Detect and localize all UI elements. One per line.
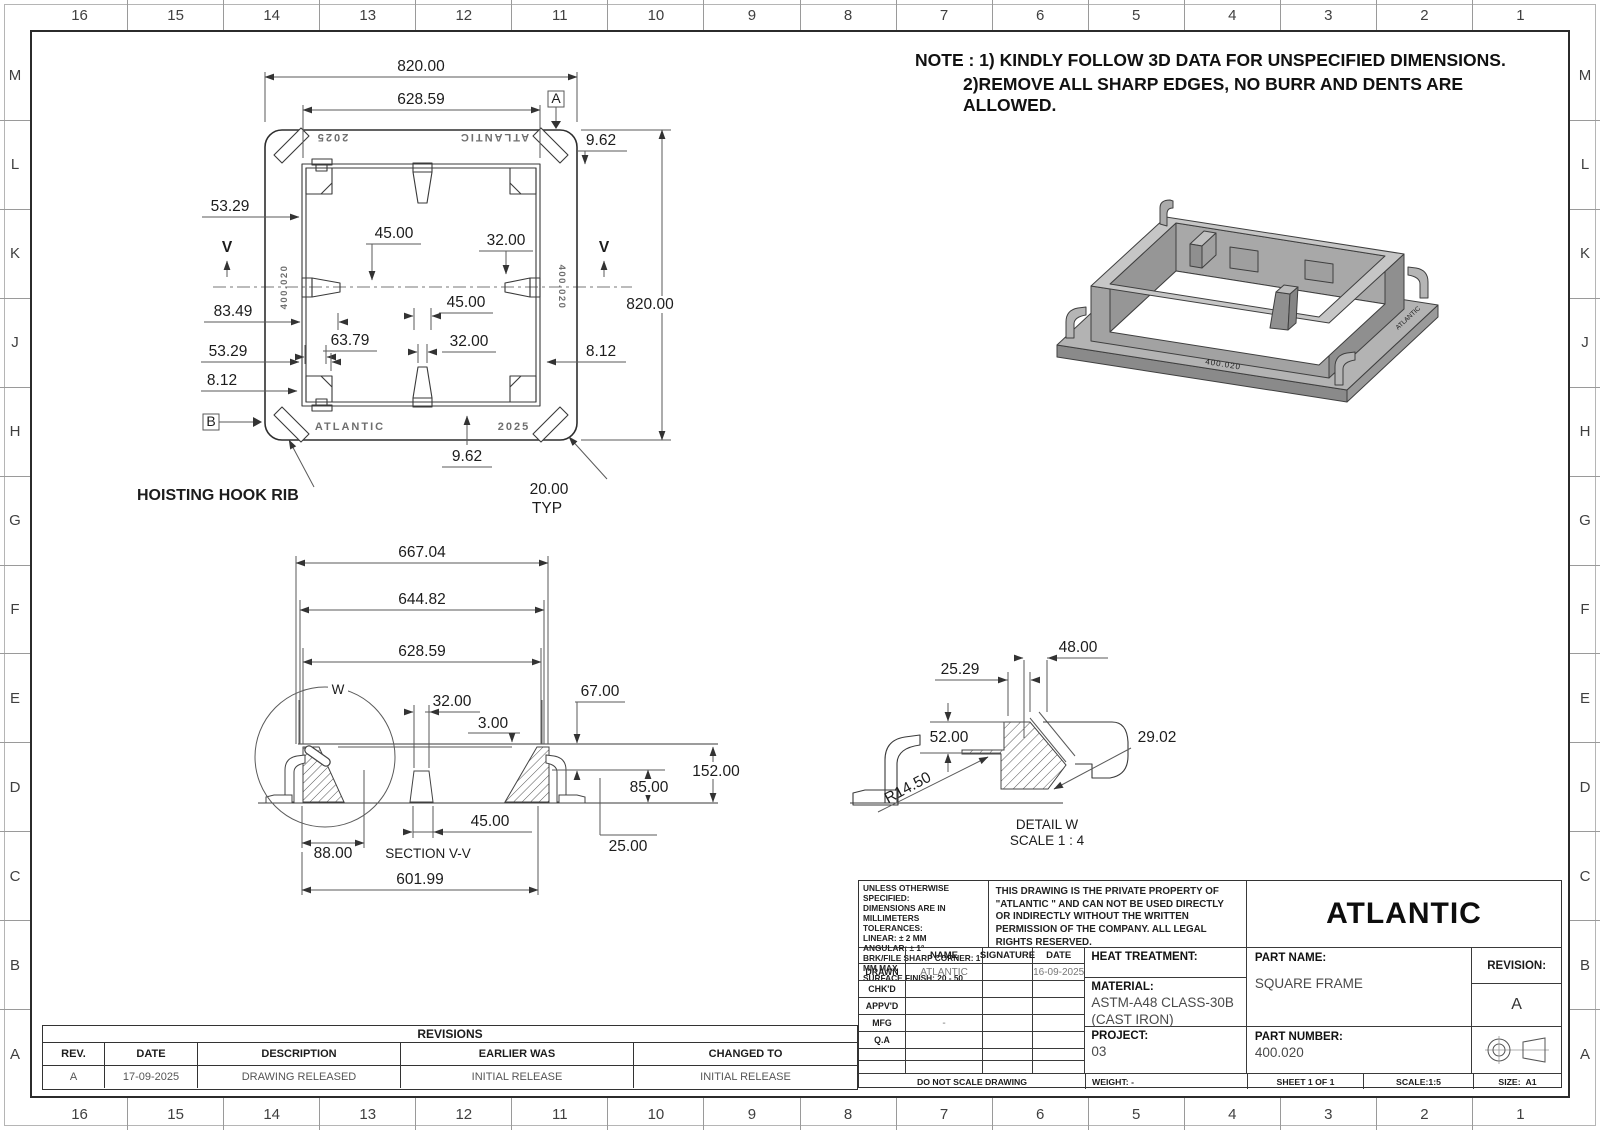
scale-label: SCALE:1:5 (1364, 1074, 1474, 1089)
marking-atlantic-mirrored: ATLANTIC (459, 131, 529, 143)
size-cell: SIZE: A1 (1474, 1074, 1561, 1089)
material-label: MATERIAL: (1091, 981, 1240, 993)
zone-col: 15 (128, 0, 224, 30)
zone-col: 14 (224, 1098, 320, 1130)
general-notes: NOTE : 1) KINDLY FOLLOW 3D DATA FOR UNSP… (915, 50, 1535, 116)
dim-2529: 25.29 (941, 661, 980, 678)
signature-header-row: NAME SIGNATURE DATE (859, 948, 1084, 964)
hoisting-leader (289, 440, 314, 487)
zone-row: C (0, 832, 30, 921)
svg-text:A: A (551, 90, 561, 106)
zone-row: B (1570, 921, 1600, 1010)
revision-info: REVISION: A (1472, 948, 1561, 1074)
marking-2025-mirrored: 2025 (316, 131, 348, 143)
dim-45s: 45.00 (471, 813, 510, 830)
material-cell: MATERIAL: ASTM-A48 CLASS-30B (CAST IRON) (1085, 978, 1246, 1027)
revisions-table: REVISIONS REV. DATE DESCRIPTION EARLIER … (42, 1025, 858, 1090)
signature-table: NAME SIGNATURE DATE DRAWN ATLANTIC 16-09… (859, 948, 1085, 1074)
zone-row: B (0, 921, 30, 1010)
zone-col: 10 (608, 0, 704, 30)
col-rev: REV. (43, 1043, 105, 1066)
note-line-2: 2)REMOVE ALL SHARP EDGES, NO BURR AND DE… (915, 74, 1535, 116)
detail-title: DETAIL W (1016, 817, 1079, 832)
dim-820-right: 820.00 (626, 296, 674, 313)
rev-date: 17-09-2025 (105, 1066, 198, 1088)
note-line-1: NOTE : 1) KINDLY FOLLOW 3D DATA FOR UNSP… (915, 50, 1535, 71)
part-name-value: SQUARE FRAME (1255, 976, 1463, 991)
dim-45-upper-lines (366, 244, 421, 280)
zone-row: K (1570, 210, 1600, 299)
col-signature: SIGNATURE (983, 948, 1033, 963)
zone-col: 14 (224, 0, 320, 30)
datum-a: A (548, 90, 564, 129)
section-arrow-v-left: V (222, 239, 233, 256)
zone-col: 6 (993, 1098, 1089, 1130)
zone-col: 3 (1281, 0, 1377, 30)
col-name: NAME (906, 948, 983, 963)
dim-45-lower-lines (406, 308, 493, 330)
dim-628: 628.59 (397, 91, 444, 108)
dim-3-lines (468, 733, 520, 742)
project-cell: PROJECT: 03 (1085, 1027, 1246, 1073)
process-info: HEAT TREATMENT: MATERIAL: ASTM-A48 CLASS… (1085, 948, 1247, 1074)
material-value: (CAST IRON) (1091, 1012, 1240, 1027)
zone-band-top: 16151413121110987654321 (32, 0, 1568, 30)
zone-col: 13 (320, 0, 416, 30)
material-value: ASTM-A48 CLASS-30B (1091, 995, 1240, 1010)
zone-col: 4 (1185, 1098, 1281, 1130)
marking-atlantic: ATLANTIC (315, 421, 385, 433)
col-changed-to: CHANGED TO (634, 1043, 857, 1066)
dim-812-right: 8.12 (586, 343, 616, 360)
dim-48: 48.00 (1059, 639, 1098, 656)
hoisting-hook-rib-label: HOISTING HOOK RIB (137, 487, 299, 504)
zone-col: 3 (1281, 1098, 1377, 1130)
size-label: SIZE: (1498, 1077, 1520, 1087)
dim-3: 3.00 (478, 715, 509, 732)
zone-col: 5 (1089, 0, 1185, 30)
sign-row-chkd: CHK'D (859, 981, 1084, 998)
dim-20: 20.00 (530, 481, 569, 498)
dim-962-top-lines (577, 151, 627, 164)
section-view-drawing: W 667.04 644.82 628.59 32.00 3.00 67.00 … (240, 530, 745, 900)
dim-601: 601.99 (396, 871, 443, 888)
section-title: SECTION V-V (385, 846, 471, 861)
mid-side-bosses (302, 163, 540, 407)
dim-45-lower: 45.00 (447, 294, 486, 311)
rev-description: DRAWING RELEASED (198, 1066, 401, 1088)
dim-45s-lines (405, 806, 532, 838)
top-view-drawing: 2025 ATLANTIC ATLANTIC 2025 400.020 400.… (120, 40, 700, 525)
zone-band-right: MLKJHGFEDCBA (1570, 32, 1600, 1098)
iso-frame-model (1057, 200, 1438, 402)
weight-label: WEIGHT: - (1086, 1074, 1248, 1089)
part-number-value: 400.020 (1255, 1045, 1463, 1060)
part-number-cell: PART NUMBER: 400.020 (1247, 1027, 1471, 1073)
dim-812-left: 8.12 (207, 372, 237, 389)
zone-row: M (1570, 32, 1600, 121)
tolerance-line: UNLESS OTHERWISE SPECIFIED: (863, 884, 984, 904)
zone-col: 13 (320, 1098, 416, 1130)
zone-row: H (1570, 388, 1600, 477)
hoisting-hook-rib (533, 128, 568, 163)
zone-col: 15 (128, 1098, 224, 1130)
sign-row-empty (859, 1061, 1084, 1073)
zone-row: D (1570, 743, 1600, 832)
sign-row-drawn: DRAWN ATLANTIC 16-09-2025 (859, 964, 1084, 981)
latch-features (312, 159, 332, 411)
project-value: 03 (1091, 1044, 1240, 1059)
zone-col: 6 (993, 0, 1089, 30)
dim-32-upper: 32.00 (487, 232, 526, 249)
dim-32s: 32.00 (433, 693, 472, 710)
zone-col: 12 (416, 0, 512, 30)
detail-scale: SCALE 1 : 4 (1010, 833, 1085, 848)
iso-3d-view: 400.020 ATLANTIC (1000, 195, 1460, 410)
zone-col: 1 (1473, 0, 1568, 30)
zone-row: E (0, 654, 30, 743)
dim-32-upper-lines (479, 251, 533, 274)
dim-45-upper: 45.00 (375, 225, 414, 242)
zone-col: 8 (801, 1098, 897, 1130)
zone-col: 2 (1377, 1098, 1473, 1130)
dim-820-right-lines (581, 130, 671, 440)
zone-row: M (0, 32, 30, 121)
revision-value: A (1472, 984, 1561, 1027)
zone-col: 11 (512, 0, 608, 30)
zone-col: 7 (897, 0, 993, 30)
part-name-label: PART NAME: (1255, 952, 1463, 964)
col-date: DATE (105, 1043, 198, 1066)
dim-962-top: 9.62 (586, 132, 616, 149)
frame-wall-outer (302, 164, 540, 406)
zone-band-left: MLKJHGFEDCBA (0, 32, 30, 1098)
part-number-label: PART NUMBER: (1255, 1031, 1463, 1043)
zone-row: J (1570, 299, 1600, 388)
projection-symbol-cell (1472, 1027, 1561, 1073)
dim-644: 644.82 (398, 591, 445, 608)
dim-5329-lower: 53.29 (209, 343, 248, 360)
do-not-scale-label: DO NOT SCALE DRAWING (859, 1074, 1086, 1089)
rev-earlier: INITIAL RELEASE (401, 1066, 634, 1088)
zone-col: 8 (801, 0, 897, 30)
dim-25: 25.00 (609, 838, 648, 855)
revision-row: A 17-09-2025 DRAWING RELEASED INITIAL RE… (43, 1066, 857, 1088)
zone-row: G (0, 477, 30, 566)
zone-col: 11 (512, 1098, 608, 1130)
sign-row-appvd: APPV'D (859, 998, 1084, 1015)
dim-20-typ: TYP (532, 500, 562, 517)
col-earlier-was: EARLIER WAS (401, 1043, 634, 1066)
zone-row: A (0, 1010, 30, 1098)
col-date: DATE (1033, 948, 1084, 963)
zone-row: L (1570, 121, 1600, 210)
zone-col: 4 (1185, 0, 1281, 30)
dim-8349: 83.49 (214, 303, 253, 320)
zone-row: F (0, 566, 30, 655)
dim-5329-upper: 53.29 (211, 198, 250, 215)
marking-part-number-left: 400.020 (279, 265, 290, 310)
project-label: PROJECT: (1091, 1030, 1240, 1042)
dim-32s-lines (404, 705, 480, 768)
zone-band-bottom: 16151413121110987654321 (32, 1098, 1568, 1130)
marking-2025: 2025 (498, 421, 530, 433)
dim-667: 667.04 (398, 544, 446, 561)
detail-w-mark: W (332, 682, 345, 697)
zone-col: 9 (704, 0, 800, 30)
revision-label: REVISION: (1472, 948, 1561, 984)
col-description: DESCRIPTION (198, 1043, 401, 1066)
zone-row: E (1570, 654, 1600, 743)
dim-20-leader (569, 437, 607, 479)
zone-row: J (0, 299, 30, 388)
title-block: UNLESS OTHERWISE SPECIFIED: DIMENSIONS A… (858, 880, 1562, 1088)
property-note: THIS DRAWING IS THE PRIVATE PROPERTY OF … (989, 881, 1247, 948)
zone-col: 2 (1377, 0, 1473, 30)
dim-2902: 29.02 (1138, 729, 1177, 746)
dim-85: 85.00 (630, 779, 669, 796)
dim-152: 152.00 (692, 763, 740, 780)
dim-820-top: 820.00 (397, 58, 445, 75)
zone-row: C (1570, 832, 1600, 921)
heat-treatment-label: HEAT TREATMENT: (1091, 951, 1240, 963)
zone-row: H (0, 388, 30, 477)
rev-changed: INITIAL RELEASE (634, 1066, 857, 1088)
sign-row-qa: Q.A (859, 1032, 1084, 1049)
zone-col: 9 (704, 1098, 800, 1130)
hoisting-hook-rib (274, 128, 309, 163)
zone-col: 16 (32, 0, 128, 30)
zone-row: L (0, 121, 30, 210)
zone-row: D (0, 743, 30, 832)
zone-col: 5 (1089, 1098, 1185, 1130)
part-info: PART NAME: SQUARE FRAME PART NUMBER: 400… (1247, 948, 1472, 1074)
zone-row: G (1570, 477, 1600, 566)
tolerance-line: DIMENSIONS ARE IN MILLIMETERS (863, 904, 984, 924)
dim-52: 52.00 (930, 729, 969, 746)
zone-col: 7 (897, 1098, 993, 1130)
dim-32-lower: 32.00 (450, 333, 489, 350)
hoisting-hook-rib (533, 407, 568, 442)
sign-row-empty (859, 1049, 1084, 1061)
dim-962-bottom: 9.62 (452, 448, 482, 465)
zone-col: 16 (32, 1098, 128, 1130)
size-value: A1 (1525, 1077, 1536, 1087)
revisions-title: REVISIONS (43, 1026, 857, 1043)
section-arrow-v-right: V (599, 239, 610, 256)
dim-67: 67.00 (581, 683, 620, 700)
revisions-header-row: REV. DATE DESCRIPTION EARLIER WAS CHANGE… (43, 1043, 857, 1066)
sheet-label: SHEET 1 OF 1 (1248, 1074, 1364, 1089)
company-logo: ATLANTIC (1247, 881, 1561, 948)
dim-88: 88.00 (314, 845, 353, 862)
marking-part-number-right: 400.020 (556, 265, 567, 310)
tolerance-note: UNLESS OTHERWISE SPECIFIED: DIMENSIONS A… (859, 881, 989, 948)
detail-w-drawing: 48.00 25.29 52.00 29.02 R14.50 DETAIL W … (840, 605, 1190, 850)
zone-col: 12 (416, 1098, 512, 1130)
third-angle-projection-icon (1483, 1034, 1551, 1066)
zone-row: A (1570, 1010, 1600, 1098)
zone-row: F (1570, 566, 1600, 655)
svg-text:B: B (206, 413, 215, 429)
zone-row: K (0, 210, 30, 299)
zone-col: 10 (608, 1098, 704, 1130)
rev-value: A (43, 1066, 105, 1088)
sign-row-mfg: MFG - (859, 1015, 1084, 1032)
zone-col: 1 (1473, 1098, 1568, 1130)
heat-treatment-cell: HEAT TREATMENT: (1085, 948, 1246, 978)
part-name-cell: PART NAME: SQUARE FRAME (1247, 948, 1471, 1027)
datum-b: B (203, 413, 262, 430)
dim-6379: 63.79 (331, 332, 370, 349)
hoisting-hook-rib (274, 407, 309, 442)
dim-628s: 628.59 (398, 643, 445, 660)
